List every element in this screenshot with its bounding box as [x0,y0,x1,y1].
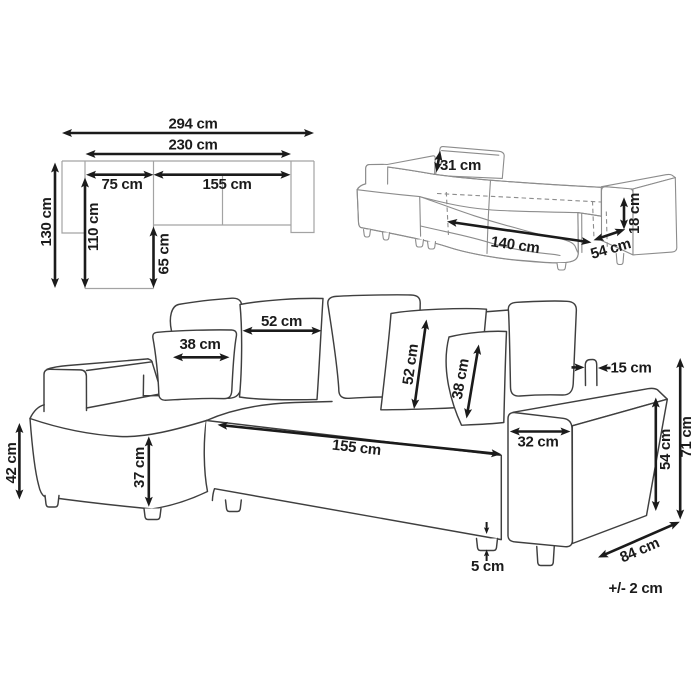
svg-text:15 cm: 15 cm [610,359,651,376]
svg-text:42 cm: 42 cm [3,442,20,483]
svg-text:+/- 2 cm: +/- 2 cm [609,580,663,597]
svg-text:52 cm: 52 cm [261,313,302,330]
svg-text:230 cm: 230 cm [168,137,217,154]
svg-text:294 cm: 294 cm [168,115,217,132]
svg-text:155 cm: 155 cm [202,176,251,193]
svg-text:32 cm: 32 cm [517,433,558,450]
svg-text:37 cm: 37 cm [131,447,148,488]
svg-text:54 cm: 54 cm [657,429,674,470]
svg-text:71 cm: 71 cm [678,416,695,457]
svg-text:65 cm: 65 cm [156,233,173,274]
svg-text:110 cm: 110 cm [85,203,102,251]
svg-text:130 cm: 130 cm [38,197,55,246]
svg-text:38 cm: 38 cm [179,336,220,353]
svg-text:75 cm: 75 cm [101,176,142,193]
svg-text:31 cm: 31 cm [440,157,481,174]
svg-text:18 cm: 18 cm [626,193,643,234]
svg-text:5 cm: 5 cm [471,558,504,575]
